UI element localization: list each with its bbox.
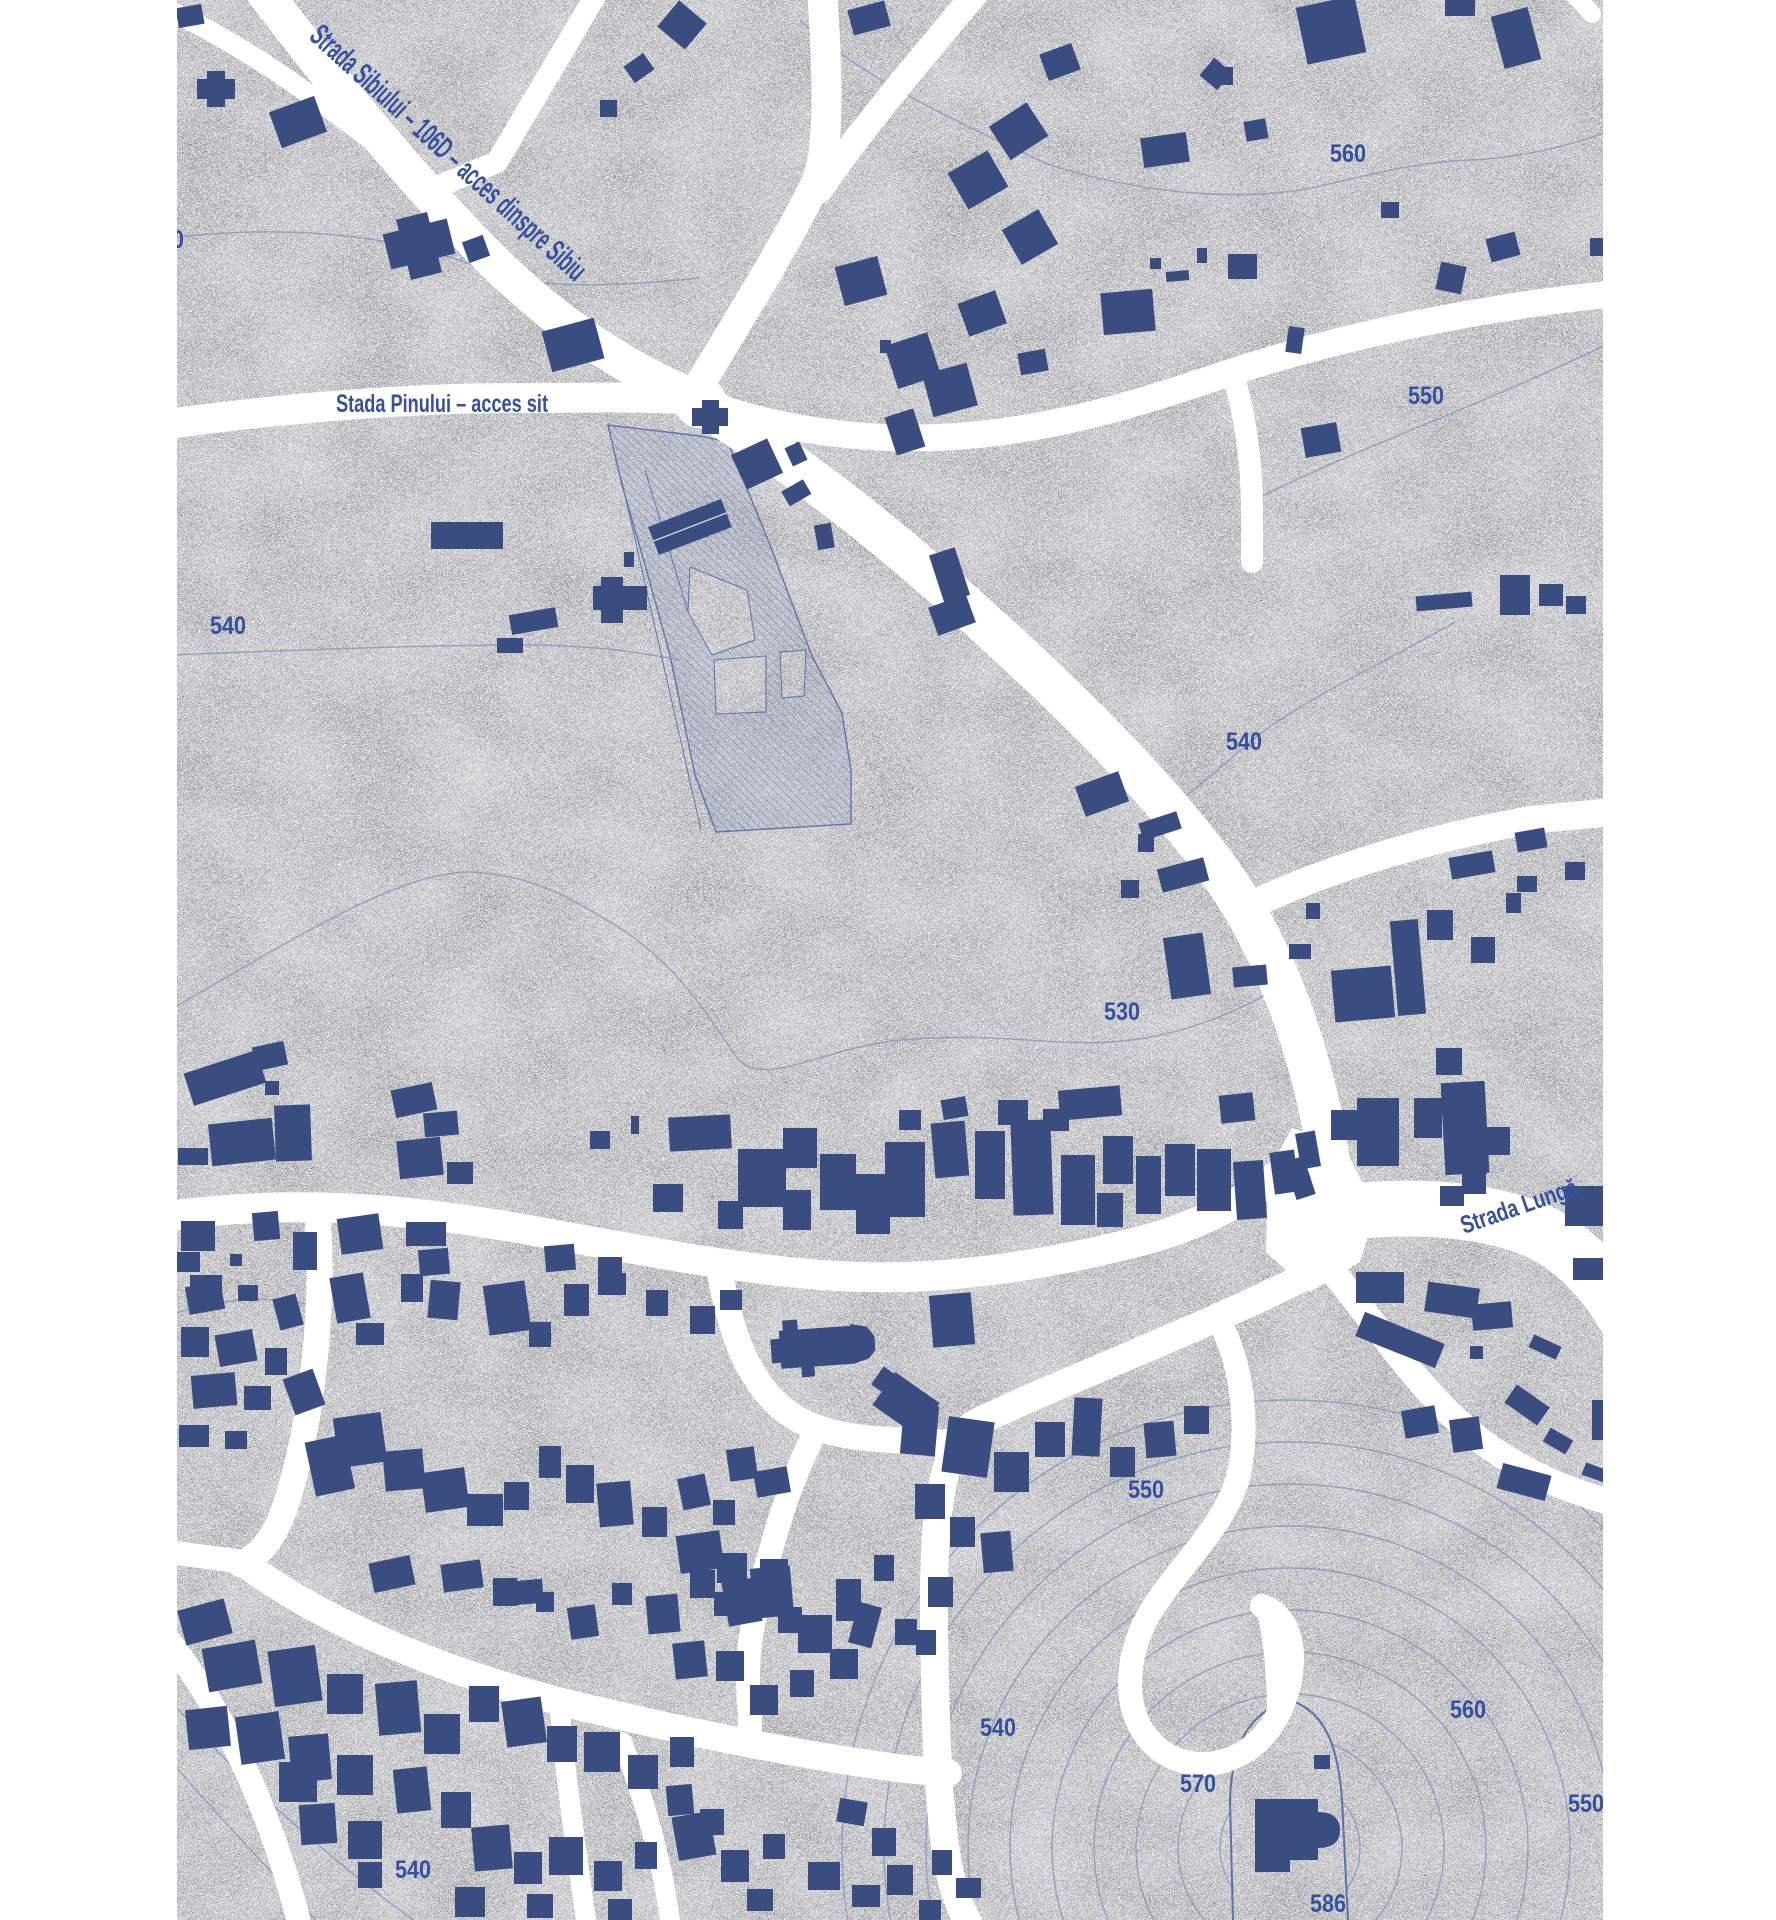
svg-text:540: 540	[395, 1856, 431, 1884]
svg-text:530: 530	[1104, 998, 1140, 1026]
svg-text:550: 550	[1128, 1476, 1164, 1504]
svg-text:570: 570	[1180, 1770, 1216, 1798]
svg-text:540: 540	[980, 1714, 1016, 1742]
svg-text:550: 550	[1568, 1790, 1604, 1818]
svg-text:560: 560	[1330, 140, 1366, 168]
svg-text:Stada Pinului – acces sit: Stada Pinului – acces sit	[336, 390, 548, 418]
svg-text:540: 540	[1226, 728, 1262, 756]
svg-text:586: 586	[1310, 1890, 1346, 1918]
svg-text:550: 550	[1408, 382, 1444, 410]
svg-text:560: 560	[1450, 1696, 1486, 1724]
svg-text:540: 540	[210, 612, 246, 640]
